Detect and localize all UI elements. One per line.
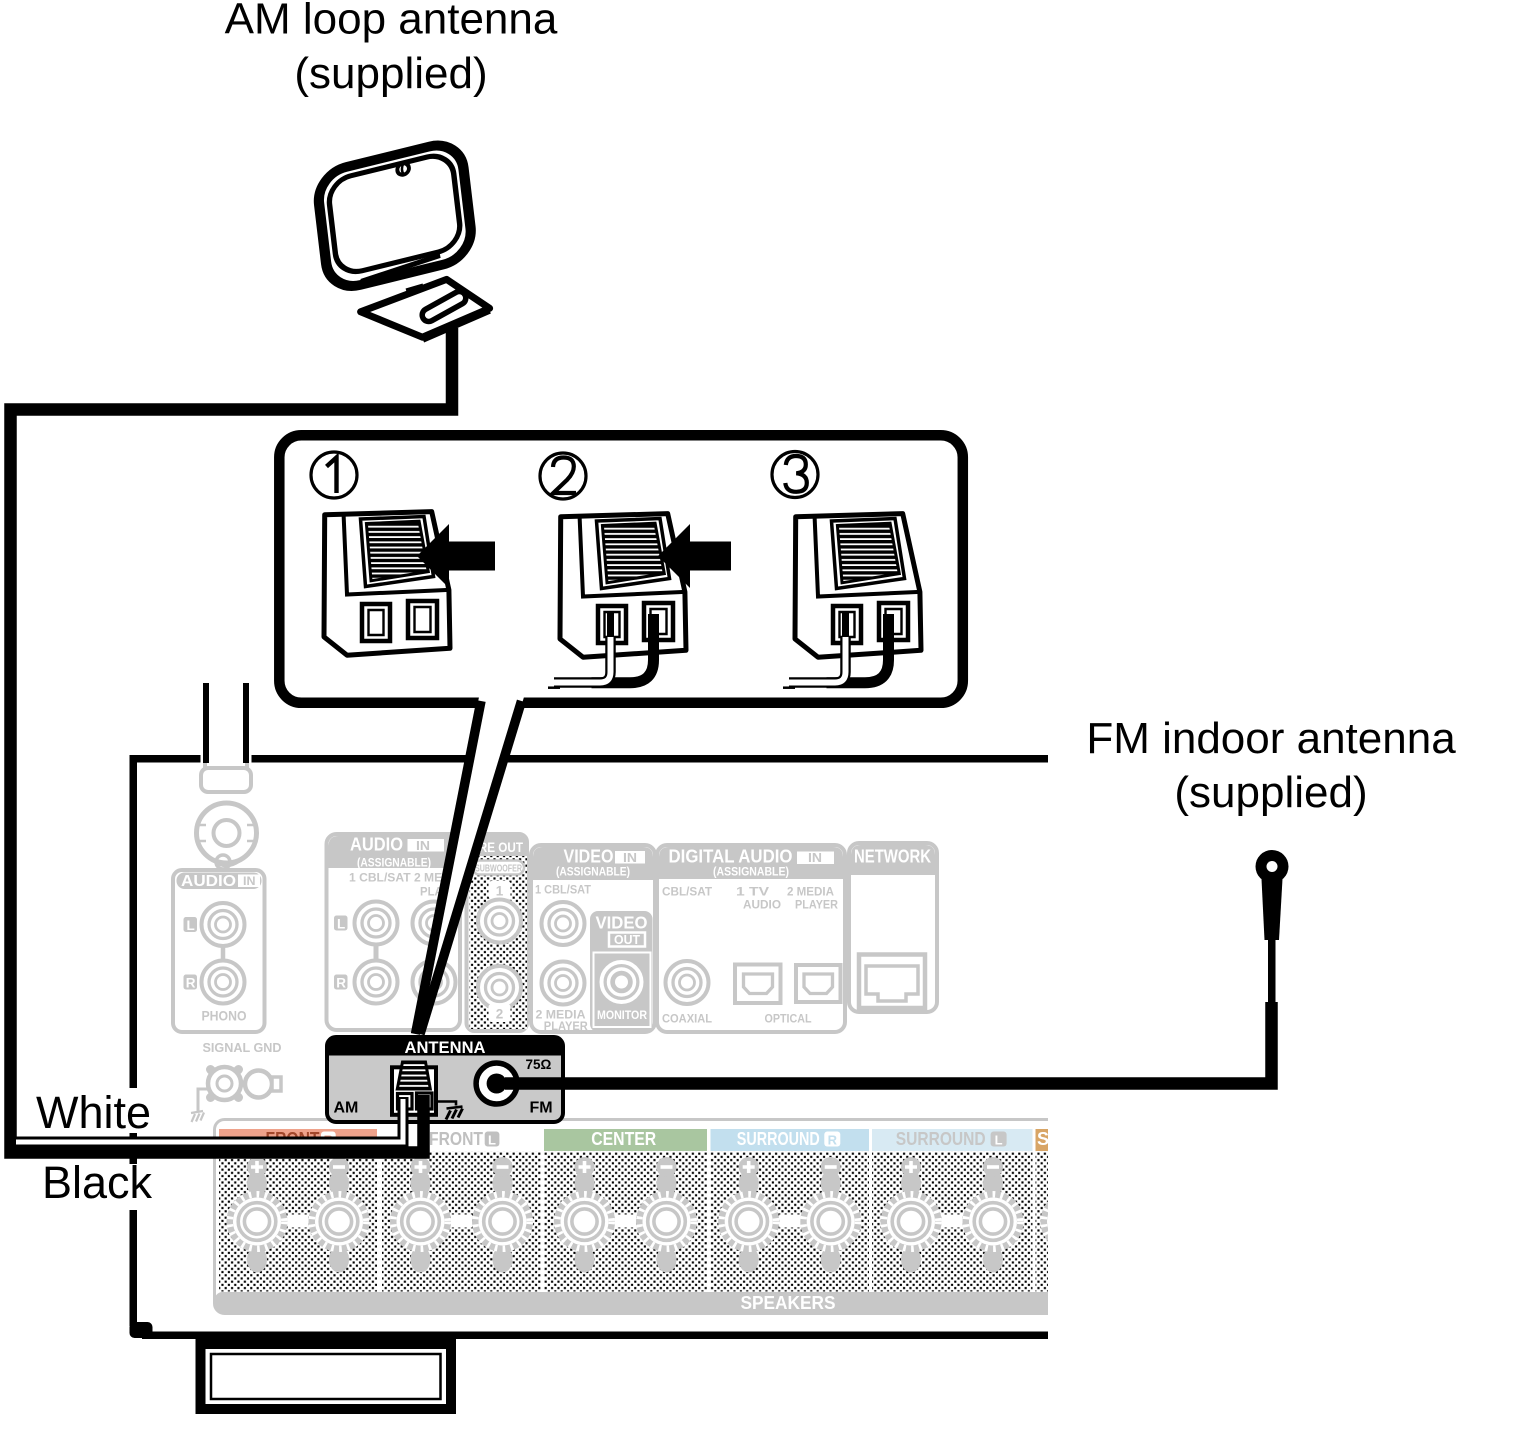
- svg-text:1 CBL/SAT: 1 CBL/SAT: [535, 883, 592, 897]
- svg-text:AUDIO: AUDIO: [181, 873, 236, 890]
- svg-text:L: L: [488, 1133, 496, 1148]
- svg-text:2 MEDIA: 2 MEDIA: [787, 885, 834, 899]
- svg-text:(ASSIGNABLE): (ASSIGNABLE): [713, 867, 789, 879]
- svg-text:(ASSIGNABLE): (ASSIGNABLE): [556, 867, 630, 879]
- svg-text:SIGNAL GND: SIGNAL GND: [203, 1041, 282, 1055]
- svg-text:PHONO: PHONO: [202, 1009, 247, 1024]
- svg-text:FRONT: FRONT: [429, 1129, 483, 1149]
- svg-text:NETWORK: NETWORK: [854, 847, 931, 867]
- svg-text:R: R: [336, 976, 346, 991]
- svg-text:SUBWOOFER: SUBWOOFER: [475, 864, 523, 875]
- svg-text:1 TV: 1 TV: [736, 885, 769, 899]
- svg-text:R: R: [186, 976, 196, 991]
- svg-text:CBL/SAT: CBL/SAT: [662, 885, 713, 899]
- svg-text:PLAYER: PLAYER: [795, 898, 838, 912]
- svg-text:2: 2: [496, 1007, 504, 1022]
- svg-text:AUDIO: AUDIO: [743, 898, 781, 912]
- svg-text:FM indoor antenna: FM indoor antenna: [1086, 714, 1456, 763]
- svg-text:(ASSIGNABLE): (ASSIGNABLE): [357, 858, 431, 870]
- svg-text:R: R: [828, 1133, 838, 1148]
- svg-text:1: 1: [496, 884, 504, 899]
- svg-text:S: S: [1037, 1129, 1049, 1149]
- svg-text:MONITOR: MONITOR: [597, 1008, 647, 1022]
- svg-text:SPEAKERS: SPEAKERS: [741, 1292, 836, 1313]
- svg-text:DIGITAL AUDIO: DIGITAL AUDIO: [669, 847, 793, 867]
- svg-text:75Ω: 75Ω: [526, 1057, 552, 1072]
- svg-text:OPTICAL: OPTICAL: [765, 1012, 812, 1026]
- svg-text:IN: IN: [243, 874, 256, 888]
- svg-text:SURROUND: SURROUND: [737, 1129, 820, 1149]
- svg-text:L: L: [337, 917, 345, 932]
- svg-text:FM: FM: [530, 1100, 553, 1117]
- svg-text:COAXIAL: COAXIAL: [662, 1012, 712, 1026]
- svg-text:AM: AM: [334, 1100, 359, 1117]
- svg-text:SURROUND: SURROUND: [896, 1129, 986, 1149]
- svg-text:L: L: [187, 918, 195, 933]
- svg-text:VIDEO: VIDEO: [564, 847, 614, 867]
- svg-text:IN: IN: [416, 839, 430, 853]
- svg-text:CENTER: CENTER: [591, 1129, 656, 1149]
- svg-text:IN: IN: [808, 851, 822, 865]
- svg-text:L: L: [995, 1133, 1003, 1148]
- svg-text:AUDIO: AUDIO: [350, 835, 403, 855]
- svg-text:ANTENNA: ANTENNA: [405, 1039, 486, 1057]
- svg-text:(supplied): (supplied): [1174, 768, 1367, 817]
- svg-text:(supplied): (supplied): [294, 49, 487, 98]
- svg-text:IN: IN: [623, 851, 637, 865]
- svg-text:PLAYER: PLAYER: [544, 1019, 588, 1033]
- svg-text:OUT: OUT: [614, 933, 640, 947]
- svg-text:White: White: [36, 1087, 151, 1138]
- svg-text:AM loop antenna: AM loop antenna: [225, 0, 558, 44]
- svg-text:VIDEO: VIDEO: [596, 913, 648, 933]
- svg-text:Black: Black: [42, 1157, 153, 1208]
